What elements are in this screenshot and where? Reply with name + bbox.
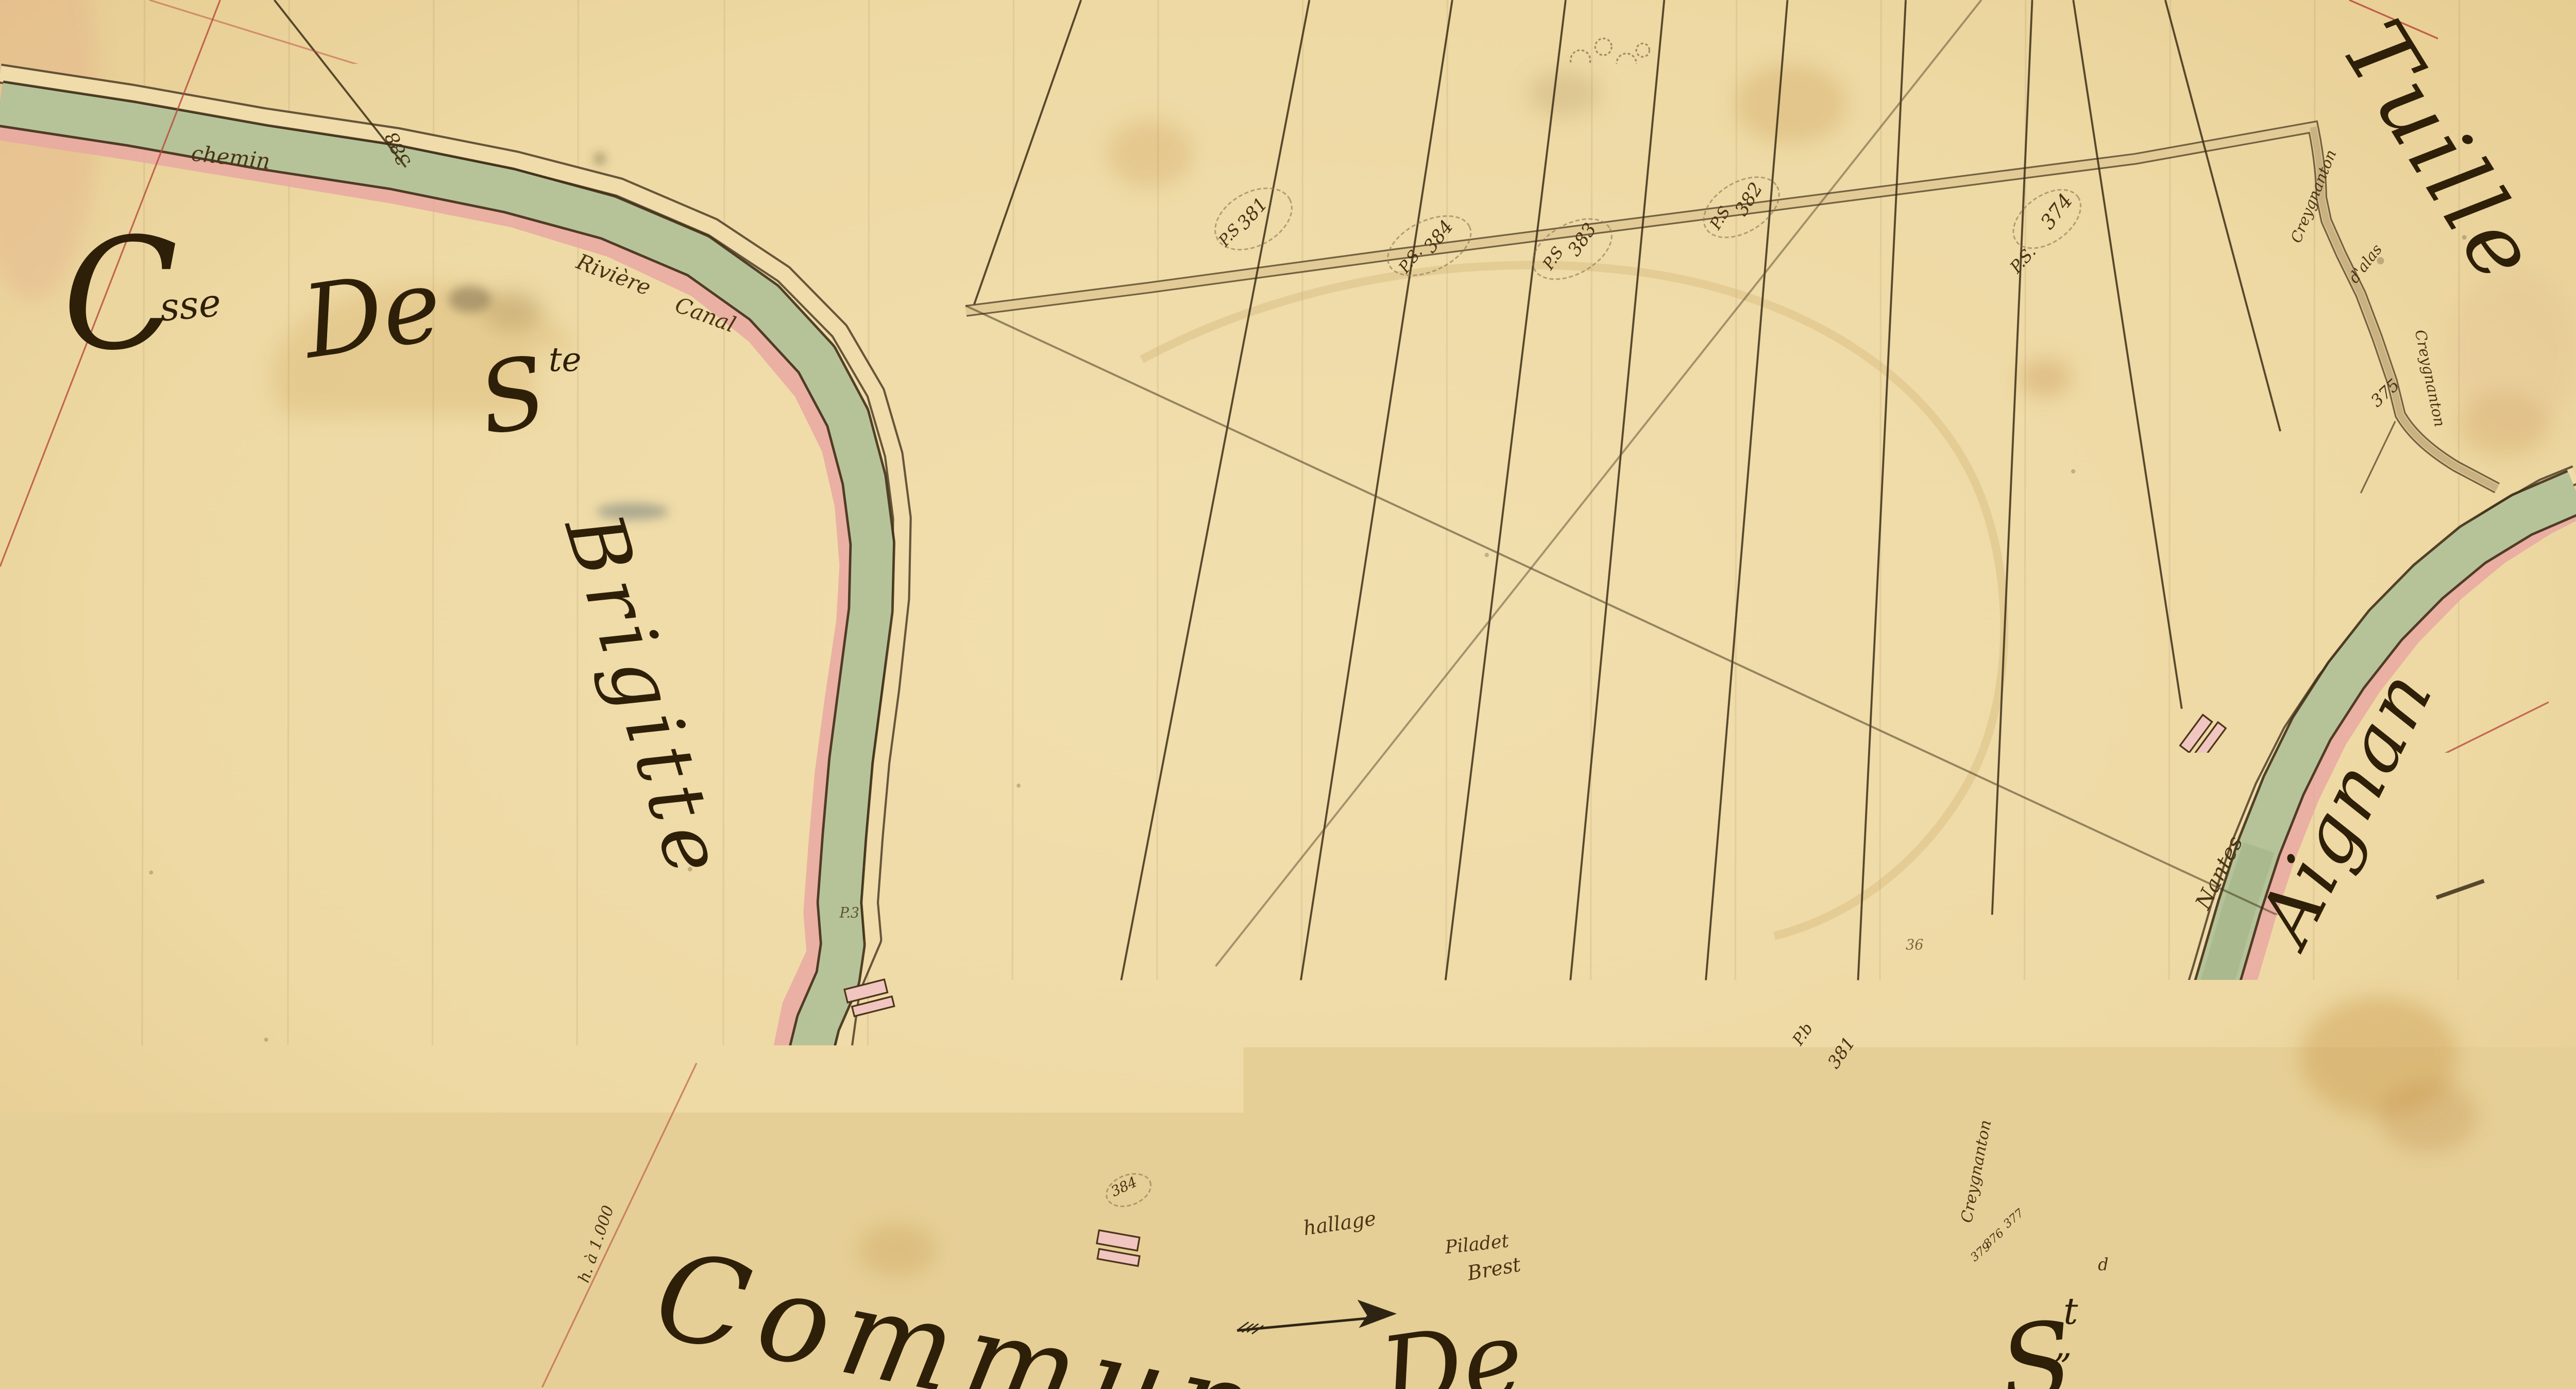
map-canvas: C sse De S te Brigitte Tuille Aignan Com… [0, 0, 2576, 1389]
label-p3: P.3 [839, 905, 859, 921]
label-bank-d: d [2098, 1255, 2108, 1274]
label-ste-upper-sup: te [549, 341, 581, 380]
label-ste-lower-mark: „ [2054, 1323, 2072, 1366]
label-dim-36: 36 [1906, 937, 1923, 953]
label-de-upper: De [295, 246, 448, 382]
cadastral-map: C sse De S te Brigitte Tuille Aignan Com… [0, 0, 2576, 1389]
paper-background [0, 0, 2576, 1389]
label-dim-25: 25. [1799, 603, 1823, 620]
label-csse-sup: sse [158, 280, 223, 330]
